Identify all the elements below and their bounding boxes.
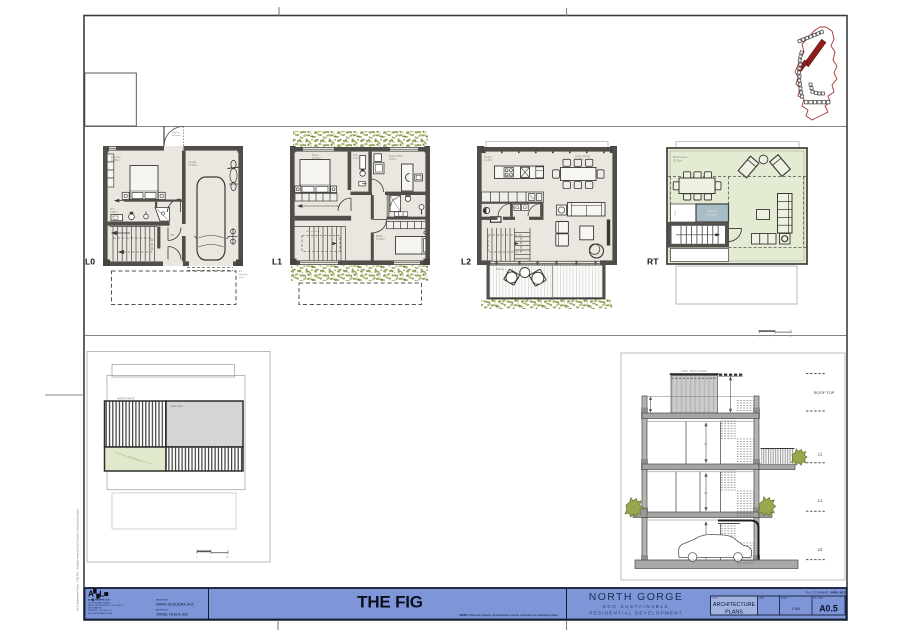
svg-text:THE FIG: THE FIG <box>357 593 423 612</box>
svg-text:RT: RT <box>647 257 659 267</box>
svg-text:L0: L0 <box>85 257 95 267</box>
svg-text:5m: 5m <box>789 336 792 338</box>
svg-text:ALB█CREATIVE.COM: ALB█CREATIVE.COM <box>88 599 110 602</box>
svg-text:55.15m²: 55.15m² <box>673 159 682 162</box>
svg-text:Pedestr.: Pedestr. <box>172 131 180 134</box>
svg-text:GLAZED: GLAZED <box>708 210 717 213</box>
svg-text:Pantry: Pantry <box>514 207 521 210</box>
svg-text:1:100: 1:100 <box>791 607 800 611</box>
svg-text:TO L2: TO L2 <box>675 210 677 216</box>
svg-text:TITLE: TITLE <box>712 598 718 600</box>
svg-text:STAIR · ROOF ACCESS: STAIR · ROOF ACCESS <box>681 370 708 373</box>
svg-text:DATE: DATE <box>759 597 765 600</box>
svg-text:INFO@ALBCREATIVE.COM: INFO@ALBCREATIVE.COM <box>88 612 113 615</box>
svg-text:5m: 5m <box>226 557 229 559</box>
svg-text:31.30m²: 31.30m² <box>575 158 584 161</box>
svg-text:point: point <box>239 276 244 279</box>
svg-text:L0: L0 <box>818 547 823 552</box>
svg-text:NOTE: Preliminary drawing, all: NOTE: Preliminary drawing, all dimension… <box>460 613 559 617</box>
svg-text:L1: L1 <box>818 498 823 503</box>
svg-text:Walk-in closet: Walk-in closet <box>306 230 320 233</box>
svg-text:28004 MADRID: 28004 MADRID <box>88 607 102 610</box>
svg-text:SCALE: SCALE <box>781 597 788 600</box>
svg-text:3.10m²: 3.10m² <box>353 157 361 160</box>
svg-text:12.45m²: 12.45m² <box>484 159 493 162</box>
svg-text:CALLE DEL ARQUITECTO 24, LOCAL: CALLE DEL ARQUITECTO 24, LOCAL B <box>88 604 123 607</box>
svg-text:ARCHITECT: ARCHITECT <box>156 609 169 612</box>
svg-text:MARIO SEQUEIRA, Arqº: MARIO SEQUEIRA, Arqº <box>156 603 195 607</box>
svg-text:COLECTIVA ASOCIADOS: COLECTIVA ASOCIADOS <box>88 601 111 604</box>
svg-text:10.35m²: 10.35m² <box>376 238 385 241</box>
svg-text:Entrance: Entrance <box>172 134 182 137</box>
svg-text:charging: charging <box>239 273 248 276</box>
svg-text:NORTH GORGE: NORTH GORGE <box>589 591 684 603</box>
svg-text:ROOF TOP: ROOF TOP <box>814 390 835 395</box>
svg-text:A0.5 Architecture Plans - THE: A0.5 Architecture Plans - THE FIG - All … <box>76 508 80 611</box>
svg-text:JORGE VILELA, Arqº: JORGE VILELA, Arqº <box>156 613 189 617</box>
svg-text:ARCHITECT: ARCHITECT <box>156 599 169 602</box>
svg-text:L2: L2 <box>461 257 471 267</box>
svg-text:W.C.: W.C. <box>394 199 399 201</box>
svg-text:16.45m²: 16.45m² <box>189 164 198 167</box>
svg-text:FULL TO DRAWED - APRIL 2021: FULL TO DRAWED - APRIL 2021 <box>806 590 846 594</box>
svg-text:9.45m²: 9.45m² <box>389 158 397 161</box>
svg-text:L2: L2 <box>818 452 823 457</box>
svg-text:A▚L■: A▚L■ <box>88 589 109 600</box>
svg-text:A0.5: A0.5 <box>819 604 838 614</box>
svg-text:WATER TANKS: WATER TANKS <box>117 398 135 401</box>
svg-text:Hall: Hall <box>170 234 175 237</box>
svg-text:RESIDENTIAL DEVELOPMENT: RESIDENTIAL DEVELOPMENT <box>589 611 683 616</box>
svg-text:16.70m²: 16.70m² <box>312 157 321 160</box>
svg-text:SHT CARD: SHT CARD <box>814 597 824 600</box>
svg-text:ECO SUSTAINABLE: ECO SUSTAINABLE <box>603 604 670 609</box>
svg-text:L1: L1 <box>272 257 282 267</box>
svg-text:SKYLIGHT: SKYLIGHT <box>707 215 718 217</box>
svg-text:12.80m²: 12.80m² <box>111 159 120 162</box>
svg-text:ARCHITECTURE: ARCHITECTURE <box>713 602 756 608</box>
svg-text:W.C.: W.C. <box>484 208 489 210</box>
svg-text:4.50m²: 4.50m² <box>110 211 118 214</box>
svg-text:PLANS: PLANS <box>725 609 743 615</box>
svg-text:Solar Field: Solar Field <box>171 405 184 408</box>
svg-text:Balcony: Balcony <box>496 268 505 271</box>
